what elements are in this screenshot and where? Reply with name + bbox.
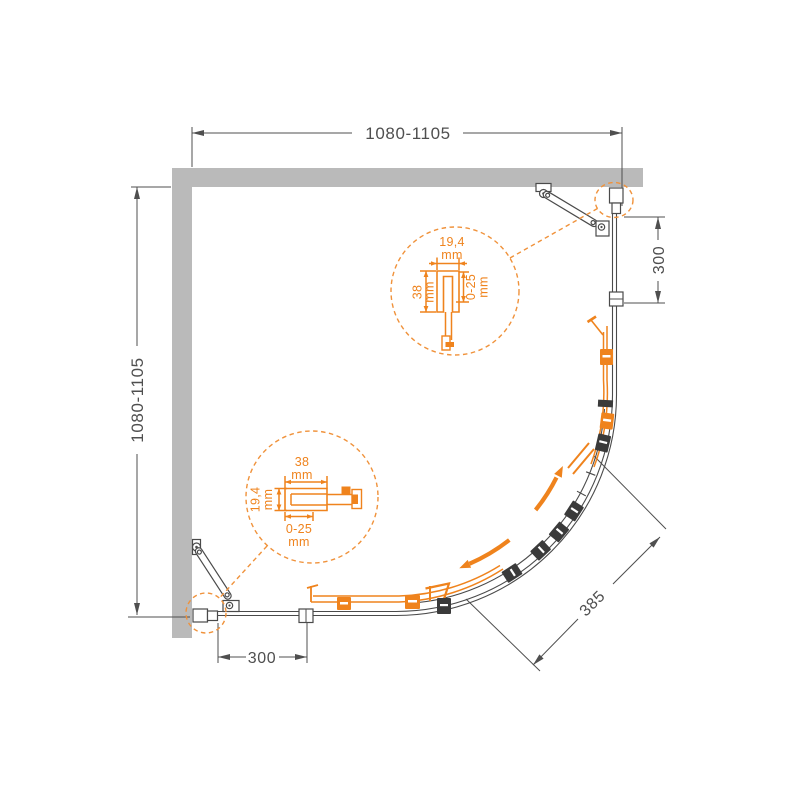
arrow-bottom [655,291,661,303]
glass-section [327,495,352,505]
curved-track-mid [396,395,613,612]
dimension-diagonal-label: 385 [577,588,609,620]
bottom-wall-profile [193,609,208,622]
door-tip-hook [307,585,318,602]
dimension-diagonal-opening: 385 [466,456,666,671]
motion-arrow-lower-head [459,560,471,568]
door-edge-inner [313,566,500,597]
detail-height-unit: mm [423,281,437,302]
bottom-wall-profile-inner [208,611,218,621]
detail-height-unit: mm [261,489,275,510]
dimension-bottom-fixed-panel: 300 [218,623,307,667]
detail-adjust-unit: mm [477,276,491,297]
dimension-bottom-label: 300 [248,650,277,667]
arrow-top [134,187,140,199]
leader-bottom [220,546,268,598]
dimension-left-label: 1080-1105 [128,357,147,442]
walls [172,168,643,638]
dimension-right-fixed-panel: 300 [624,217,668,303]
detail-width-value: 19,4 [439,235,465,249]
detail-callout-bottom: 38 mm 19,4 mm 0-25 mm [246,431,378,563]
callout-markers [186,183,633,634]
shower-enclosure-technical-drawing: 1080-1105 1080-1105 300 300 385 [0,0,800,800]
detail-width-value: 38 [295,455,310,469]
door-top-hook [591,320,603,335]
drawing-canvas: 1080-1105 1080-1105 300 300 385 [0,0,800,800]
profile-section [437,271,459,312]
dimension-right-label: 300 [651,246,668,275]
detail-adjust-unit: mm [288,535,309,549]
arrow-bottom [134,603,140,615]
support-bar [542,190,599,228]
door-handle-prongs [568,443,594,474]
curved-track-outer [396,395,617,616]
dimension-top-label: 1080-1105 [365,124,450,143]
motion-arrow-upper [536,478,557,511]
detail-width-unit: mm [291,468,312,482]
support-bar-bottom-left [193,540,240,612]
extension-lines [466,456,666,671]
track-tick-marks [577,472,595,496]
arrow-top [655,217,661,229]
right-wall-profile [610,188,624,203]
door-guide-clip [598,400,613,408]
arrow-right [295,654,307,660]
door-roller-bracket [600,412,615,429]
detail-callout-top: 19,4 mm 38 mm 0-25 mm [391,227,519,355]
dimension-top-width: 1080-1105 [192,124,622,206]
arrow-left [192,130,204,136]
motion-arrow-upper-head [554,466,563,478]
right-wall-profile-inner [612,203,621,214]
arrow-right [610,130,622,136]
motion-arrow-lower [469,540,509,564]
wall-profiles-and-connectors [193,188,623,623]
fixed-glass-panels [218,213,617,616]
sliding-door-bottom [307,566,503,611]
detail-adjust-value: 0-25 [286,522,312,536]
arrow-left [218,654,230,660]
support-bar [194,546,232,600]
